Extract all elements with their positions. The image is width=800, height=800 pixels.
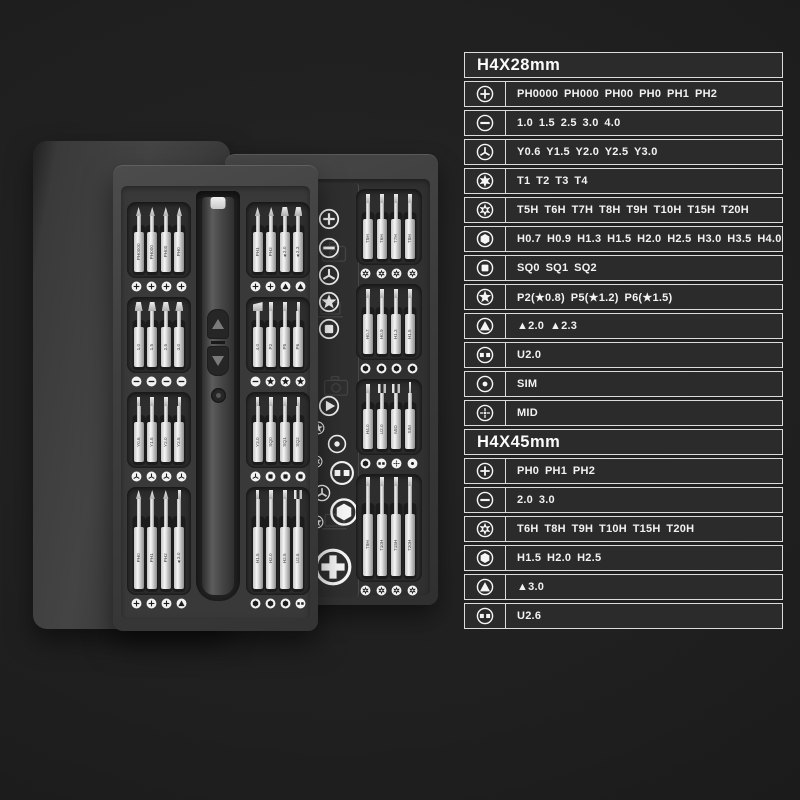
bit-neck (394, 393, 398, 409)
bit-neck (366, 203, 370, 219)
bit-label: PH000 (150, 245, 155, 259)
bit-row: T9HT10HT15HT20H (356, 474, 422, 596)
bit-shaft: H2.5 (280, 527, 290, 589)
bit-shaft: T8H (405, 219, 415, 259)
bit-type-icon-square (280, 471, 291, 482)
spec-row: SIM (464, 371, 783, 397)
bit-type-icon-y-type (465, 140, 506, 164)
bit-u-type: U2.0 (377, 384, 387, 449)
bit-type-icon-slotted (176, 376, 187, 387)
bit-label: SQ0 (269, 437, 274, 446)
plus-big-deco-icon (313, 547, 353, 587)
bit-type-icon-y-type (250, 471, 261, 482)
bit-neck (150, 311, 154, 327)
bit-label: ▲2.0 (282, 246, 287, 257)
bit-phillips: PH00 (161, 207, 171, 272)
bit-tip-rod (164, 397, 168, 406)
bit-neck (296, 499, 300, 527)
bit-hex: H2.0 (266, 490, 276, 589)
bit-shaft: P2 (266, 327, 276, 367)
bit-type-icon-torx-security (465, 517, 506, 541)
bit-neck (380, 298, 384, 314)
bit-type-icon-phillips (250, 281, 261, 292)
back-bit-column: T5HT6HT7HT8HH0.7H0.9H1.3H1.5H4.0U2.0MIDS… (356, 189, 422, 601)
bit-y-type: Y3.0 (253, 397, 263, 462)
bit-slot: 1.01.52.53.0 (127, 297, 191, 373)
bit-neck (296, 216, 300, 232)
bit-tip-rod (256, 490, 260, 499)
bit-type-icon-mid (391, 458, 402, 469)
spec-row-text: PH0 PH1 PH2 (506, 465, 595, 477)
bit-type-icons (246, 281, 310, 292)
bit-neck (380, 486, 384, 514)
bit-tip-rod (256, 397, 260, 406)
bit-tip-flat (162, 302, 170, 311)
bit-shaft: H1.3 (391, 314, 401, 354)
bit-label: 3.0 (177, 344, 182, 351)
bit-type-icon-torx-security (376, 268, 387, 279)
bit-row: PH0000PH000PH00PH0 (127, 202, 191, 292)
u-type-deco-icon (329, 460, 355, 486)
bit-shaft: ▲2.0 (280, 232, 290, 272)
spec-row-text: Y0.6 Y1.5 Y2.0 Y2.5 Y3.0 (506, 146, 658, 158)
bit-type-icon-square (465, 256, 506, 280)
bit-type-icon-torx-security (465, 198, 506, 222)
bit-type-icon-phillips (265, 281, 276, 292)
bit-label: H0.7 (366, 329, 371, 339)
bit-row: H1.5H2.0H2.5U2.6 (246, 487, 310, 609)
bit-neck (283, 499, 287, 527)
bit-pentalobe: P5 (280, 302, 290, 367)
bit-shaft: H2.0 (266, 527, 276, 589)
bit-type-icon-hex (407, 363, 418, 374)
bit-slot: PH0PH1PH2▲3.0 (127, 487, 191, 595)
bit-row: PH1PH2▲2.0▲2.3 (246, 202, 310, 292)
bit-type-icon-phillips (131, 281, 142, 292)
bit-shaft: H0.9 (377, 314, 387, 354)
bit-row: H0.7H0.9H1.3H1.5 (356, 284, 422, 374)
bit-tip-point (135, 490, 142, 499)
bit-shaft: 1.5 (147, 327, 157, 367)
spec-row: MID (464, 400, 783, 426)
bit-tip-rod (269, 490, 273, 499)
bit-type-icon-pentalobe (295, 376, 306, 387)
bit-tip-flat (148, 302, 156, 311)
bit-type-icon-y-type (146, 471, 157, 482)
bit-u-type: U2.6 (293, 490, 303, 589)
bit-type-icon-pentalobe (265, 376, 276, 387)
bit-neck (164, 311, 168, 327)
case-front: PH0000PH000PH00PH01.01.52.53.0Y0.6Y1.5Y2… (113, 165, 318, 631)
bit-tip-rod (408, 289, 412, 298)
bit-row: H4.0U2.0MIDSIM (356, 379, 422, 469)
bit-label: PH1 (150, 553, 155, 562)
bit-row: PH0PH1PH2▲3.0 (127, 487, 191, 609)
spec-row: T5H T6H T7H T8H T9H T10H T15H T20H (464, 197, 783, 223)
bit-type-icon-u-type (465, 604, 506, 628)
bit-type-icon-square (265, 471, 276, 482)
bit-slotted: 2.5 (161, 302, 171, 367)
bit-label: T15H (394, 539, 399, 550)
bit-type-icon-phillips (146, 281, 157, 292)
bit-row: T5HT6HT7HT8H (356, 189, 422, 279)
bit-tip-point (162, 490, 169, 499)
bit-row: 4.0P2P5P6 (246, 297, 310, 387)
bit-type-icon-slotted (465, 488, 506, 512)
bit-type-icon-phillips (146, 598, 157, 609)
bit-triangle: ▲3.0 (174, 490, 184, 589)
bit-slot: H0.7H0.9H1.3H1.5 (356, 284, 422, 360)
bit-tip-rod (178, 490, 182, 499)
spec-row-text: 2.0 3.0 (506, 494, 555, 506)
bit-pentalobe: P2 (266, 302, 276, 367)
spec-row: T1 T2 T3 T4 (464, 168, 783, 194)
bit-phillips: PH000 (147, 207, 157, 272)
bit-tip-rod (394, 194, 398, 203)
bit-neck (380, 393, 384, 409)
bit-tip-point (162, 207, 169, 216)
bit-type-icons (246, 598, 310, 609)
bit-label: MID (394, 425, 399, 434)
bit-type-icon-hex (465, 546, 506, 570)
bit-row: Y0.6Y1.5Y2.0Y2.5 (127, 392, 191, 482)
bit-tip-point (149, 207, 156, 216)
bit-label: SQ2 (296, 437, 301, 446)
bit-tip-rod (297, 397, 301, 406)
bit-row: Y3.0SQ0SQ1SQ2 (246, 392, 310, 482)
bit-y-type: Y0.6 (134, 397, 144, 462)
screwdriver-slot (196, 191, 240, 601)
bit-neck (137, 499, 141, 527)
bit-shaft: H4.0 (363, 409, 373, 449)
bit-shaft: Y2.5 (174, 422, 184, 462)
bit-square: SQ2 (293, 397, 303, 462)
bit-tip-rod (380, 289, 384, 298)
bit-shaft: SQ1 (280, 422, 290, 462)
bit-neck (408, 203, 412, 219)
y-type-icon (318, 264, 340, 286)
bit-tip-fork (378, 384, 386, 393)
bit-tip-rod (178, 397, 182, 406)
bit-type-icons (127, 471, 191, 482)
bit-torx-security: T6H (377, 194, 387, 259)
bit-type-icon-phillips (465, 82, 506, 106)
bit-type-icon-torx-security (360, 268, 371, 279)
bit-neck (256, 216, 260, 232)
spec-row: 1.0 1.5 2.5 3.0 4.0 (464, 110, 783, 136)
bit-tip-point (268, 207, 275, 216)
spec-row-text: U2.0 (506, 349, 541, 361)
spec-row-text: MID (506, 407, 538, 419)
bit-type-icons (356, 585, 422, 596)
bit-tip-rod (366, 194, 370, 203)
bit-label: T5H (366, 235, 371, 244)
bit-tip-rod (297, 302, 301, 311)
bit-label: 1.5 (150, 344, 155, 351)
bit-shaft: Y2.0 (161, 422, 171, 462)
bit-neck (177, 406, 181, 422)
bit-hex: H2.5 (280, 490, 290, 589)
bit-type-icons (127, 376, 191, 387)
bit-shaft: Y0.6 (134, 422, 144, 462)
bit-type-icon-torx (465, 169, 506, 193)
bit-type-icon-y-type (176, 471, 187, 482)
bit-type-icon-torx-security (360, 585, 371, 596)
bit-slot: Y3.0SQ0SQ1SQ2 (246, 392, 310, 468)
spec-row: ▲3.0 (464, 574, 783, 600)
bit-label: ▲2.3 (296, 246, 301, 257)
bit-type-icon-phillips (161, 598, 172, 609)
bit-neck (408, 393, 412, 409)
bit-shaft: SIM (405, 409, 415, 449)
spec-row-text: H0.7 H0.9 H1.3 H1.5 H2.0 H2.5 H3.0 H3.5 … (506, 233, 782, 245)
bit-type-icon-hex (250, 598, 261, 609)
bit-shaft: PH2 (266, 232, 276, 272)
bit-neck (150, 216, 154, 232)
bit-neck (283, 216, 287, 232)
bit-neck (366, 393, 370, 409)
bit-type-icon-triangle (465, 314, 506, 338)
bit-tip-point (254, 207, 261, 216)
square-icon (318, 318, 340, 340)
bit-type-icon-hex (376, 363, 387, 374)
bit-hex: H4.0 (363, 384, 373, 449)
bit-tip-rod (366, 384, 370, 393)
bit-shaft: PH1 (253, 232, 263, 272)
bit-hex: H0.9 (377, 289, 387, 354)
spec-section-header: H4X45mm (464, 429, 783, 455)
bit-type-icon-sim (407, 458, 418, 469)
bit-type-icon-triangle (465, 575, 506, 599)
bit-hex: H0.7 (363, 289, 373, 354)
bit-shaft: PH000 (147, 232, 157, 272)
spec-row: 2.0 3.0 (464, 487, 783, 513)
bit-label: T9H (366, 541, 371, 550)
bit-neck (137, 406, 141, 422)
spec-row-text: P2(★0.8) P5(★1.2) P6(★1.5) (506, 291, 672, 304)
bit-type-icon-phillips (176, 281, 187, 292)
bit-type-icon-hex (465, 227, 506, 251)
bit-tip-pin (409, 382, 411, 393)
front-left-bit-column: PH0000PH000PH00PH01.01.52.53.0Y0.6Y1.5Y2… (127, 202, 191, 614)
bit-torx-security: T10H (377, 477, 387, 576)
bit-label: PH00 (163, 246, 168, 258)
bit-type-icon-u-type (376, 458, 387, 469)
bit-square: SQ1 (280, 397, 290, 462)
bit-neck (380, 203, 384, 219)
bit-label: PH0 (177, 247, 182, 256)
bit-pentalobe: P6 (293, 302, 303, 367)
bit-type-icon-slotted (131, 376, 142, 387)
bit-tip-point (176, 207, 183, 216)
screwdriver-tip (211, 197, 226, 209)
bit-slotted: 1.0 (134, 302, 144, 367)
bit-shaft: 3.0 (174, 327, 184, 367)
bit-shaft: T10H (377, 514, 387, 576)
bit-type-icon-square (295, 471, 306, 482)
bit-label: PH2 (163, 553, 168, 562)
bit-type-icons (127, 598, 191, 609)
bit-tip-flat (294, 207, 302, 216)
bit-type-icon-hex (265, 598, 276, 609)
hex-deco-icon (329, 497, 359, 527)
bit-type-icon-u-type (295, 598, 306, 609)
spec-row-text: T1 T2 T3 T4 (506, 175, 588, 187)
bit-label: Y1.5 (150, 437, 155, 447)
bit-neck (296, 406, 300, 422)
bit-neck (408, 298, 412, 314)
bit-type-icon-mid (465, 401, 506, 425)
bit-label: H2.0 (269, 553, 274, 563)
slotted-icon (318, 237, 340, 259)
bit-shaft: MID (391, 409, 401, 449)
bit-row: 1.01.52.53.0 (127, 297, 191, 387)
bit-tip-rod (269, 302, 273, 311)
spec-row-text: SIM (506, 378, 537, 390)
bit-slot: H4.0U2.0MIDSIM (356, 379, 422, 455)
spec-row: Y0.6 Y1.5 Y2.0 Y2.5 Y3.0 (464, 139, 783, 165)
bit-label: P2 (269, 344, 274, 350)
bit-slotted: 3.0 (174, 302, 184, 367)
bit-shaft: H1.5 (253, 527, 263, 589)
bit-tip-flat (175, 302, 183, 311)
bit-sim: SIM (405, 382, 415, 449)
electric-screwdriver (202, 197, 234, 595)
bit-y-type: Y1.5 (147, 397, 157, 462)
bit-label: T7H (394, 235, 399, 244)
bit-type-icon-slotted (465, 111, 506, 135)
bit-hex: H1.3 (391, 289, 401, 354)
bit-neck (269, 216, 273, 232)
bit-type-icons (246, 376, 310, 387)
spec-section-title: H4X45mm (477, 433, 560, 452)
bit-label: Y0.6 (136, 437, 141, 447)
bit-triangle: ▲2.0 (280, 207, 290, 272)
bit-tip-rod (283, 397, 287, 406)
bit-phillips: PH2 (161, 490, 171, 589)
bit-slot: PH1PH2▲2.0▲2.3 (246, 202, 310, 278)
spec-row-text: ▲3.0 (506, 581, 544, 593)
bit-neck (269, 499, 273, 527)
bit-tip-rod (380, 194, 384, 203)
bit-tip-rod (150, 397, 154, 406)
spec-row: PH0000 PH000 PH00 PH0 PH1 PH2 (464, 81, 783, 107)
bit-phillips: PH2 (266, 207, 276, 272)
spec-section-header: H4X28mm (464, 52, 783, 78)
bit-type-icon-y-type (161, 471, 172, 482)
bit-label: PH0 (136, 553, 141, 562)
spec-row: U2.6 (464, 603, 783, 629)
bit-neck (269, 406, 273, 422)
bit-tip-fork (294, 490, 302, 499)
spec-row: H0.7 H0.9 H1.3 H1.5 H2.0 H2.5 H3.0 H3.5 … (464, 226, 783, 252)
bit-tip-flat (281, 207, 289, 216)
bit-shaft: PH0000 (134, 232, 144, 272)
star-icon (318, 291, 340, 313)
spec-row-text: PH0000 PH000 PH00 PH0 PH1 PH2 (506, 88, 717, 100)
bit-neck (256, 499, 260, 527)
bit-type-icon-torx-security (391, 585, 402, 596)
sim-deco-icon (327, 434, 347, 454)
bit-label: H1.3 (394, 329, 399, 339)
bit-phillips: PH1 (253, 207, 263, 272)
bit-torx-security: T7H (391, 194, 401, 259)
bit-tip-point (135, 207, 142, 216)
bit-tip-fork (392, 384, 400, 393)
bit-slot: T9HT10HT15HT20H (356, 474, 422, 582)
bit-triangle: ▲2.3 (293, 207, 303, 272)
spec-row: SQ0 SQ1 SQ2 (464, 255, 783, 281)
bit-label: T8H (408, 235, 413, 244)
phillips-icon (318, 208, 340, 230)
bit-label: H2.5 (282, 553, 287, 563)
bit-y-type: Y2.0 (161, 397, 171, 462)
bit-tip-rod (366, 477, 370, 486)
bit-neck (137, 216, 141, 232)
bit-type-icon-torx-security (407, 268, 418, 279)
bit-shaft: T6H (377, 219, 387, 259)
bit-label: ▲3.0 (177, 552, 182, 563)
bit-neck (177, 311, 181, 327)
bit-shaft: Y1.5 (147, 422, 157, 462)
product-photo-screwdriver-set: T5HT6HT7HT8HH0.7H0.9H1.3H1.5H4.0U2.0MIDS… (0, 0, 800, 800)
bit-label: T6H (380, 235, 385, 244)
bit-label: Y2.0 (163, 437, 168, 447)
bit-neck (408, 486, 412, 514)
spec-row-text: H1.5 H2.0 H2.5 (506, 552, 601, 564)
bit-shaft: T5H (363, 219, 373, 259)
bit-label: PH0000 (136, 244, 141, 261)
bit-shaft: 1.0 (134, 327, 144, 367)
bit-type-icons (356, 458, 422, 469)
bit-label: SQ1 (282, 437, 287, 446)
bit-slot: PH0000PH000PH00PH0 (127, 202, 191, 278)
bit-shaft: P5 (280, 327, 290, 367)
bit-label: H0.9 (380, 329, 385, 339)
spec-row-text: SQ0 SQ1 SQ2 (506, 262, 597, 274)
bit-torx-security: T8H (405, 194, 415, 259)
bit-shaft: PH2 (161, 527, 171, 589)
spec-row-text: U2.6 (506, 610, 541, 622)
bit-type-icon-torx-security (376, 585, 387, 596)
bit-torx-security: T20H (405, 477, 415, 576)
bit-neck (269, 311, 273, 327)
bit-shaft: U2.0 (377, 409, 387, 449)
bit-neck (164, 406, 168, 422)
bit-shaft: T20H (405, 514, 415, 576)
bit-slot: T5HT6HT7HT8H (356, 189, 422, 265)
bit-label: 2.5 (163, 344, 168, 351)
bit-tip-rod (366, 289, 370, 298)
button-divider (211, 341, 225, 344)
bit-neck (150, 406, 154, 422)
bit-type-icons (356, 363, 422, 374)
bit-tip-rod (269, 397, 273, 406)
bit-shaft: ▲2.3 (293, 232, 303, 272)
bit-type-icon-slotted (146, 376, 157, 387)
bit-tip-flat (135, 302, 143, 311)
bit-type-icons (356, 268, 422, 279)
bit-y-type: Y2.5 (174, 397, 184, 462)
bit-slot: Y0.6Y1.5Y2.0Y2.5 (127, 392, 191, 468)
bit-type-icons (127, 281, 191, 292)
bit-label: SIM (408, 425, 413, 433)
bit-tip-rod (408, 194, 412, 203)
bit-label: 1.0 (136, 344, 141, 351)
bit-torx-security: T15H (391, 477, 401, 576)
bit-neck (394, 486, 398, 514)
bit-type-icon-hex (280, 598, 291, 609)
